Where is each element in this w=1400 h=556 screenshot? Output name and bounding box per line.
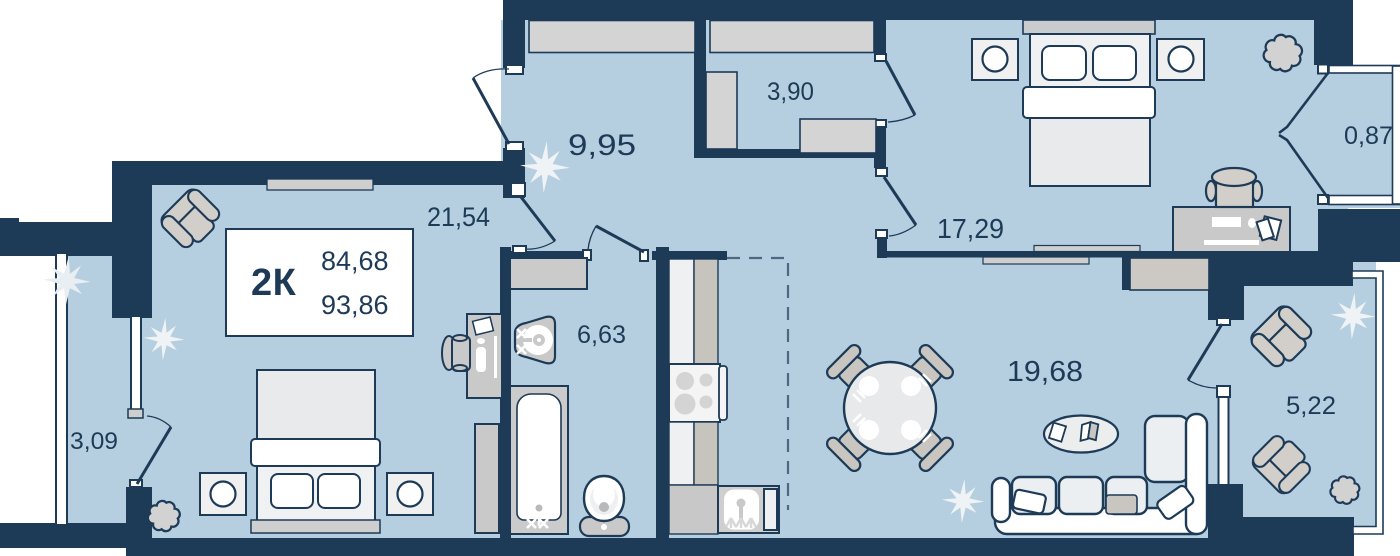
svg-text:3,90: 3,90: [767, 78, 814, 106]
svg-text:6,63: 6,63: [577, 321, 626, 349]
svg-text:93,86: 93,86: [321, 290, 389, 320]
svg-text:17,29: 17,29: [937, 213, 1004, 244]
svg-text:2К: 2К: [251, 262, 297, 304]
svg-text:21,54: 21,54: [427, 202, 490, 232]
svg-text:84,68: 84,68: [321, 246, 389, 276]
svg-text:9,95: 9,95: [568, 129, 636, 162]
svg-text:19,68: 19,68: [1007, 356, 1083, 388]
svg-text:3,09: 3,09: [70, 428, 118, 455]
svg-text:0,87: 0,87: [1344, 122, 1393, 150]
svg-text:5,22: 5,22: [1286, 392, 1336, 420]
